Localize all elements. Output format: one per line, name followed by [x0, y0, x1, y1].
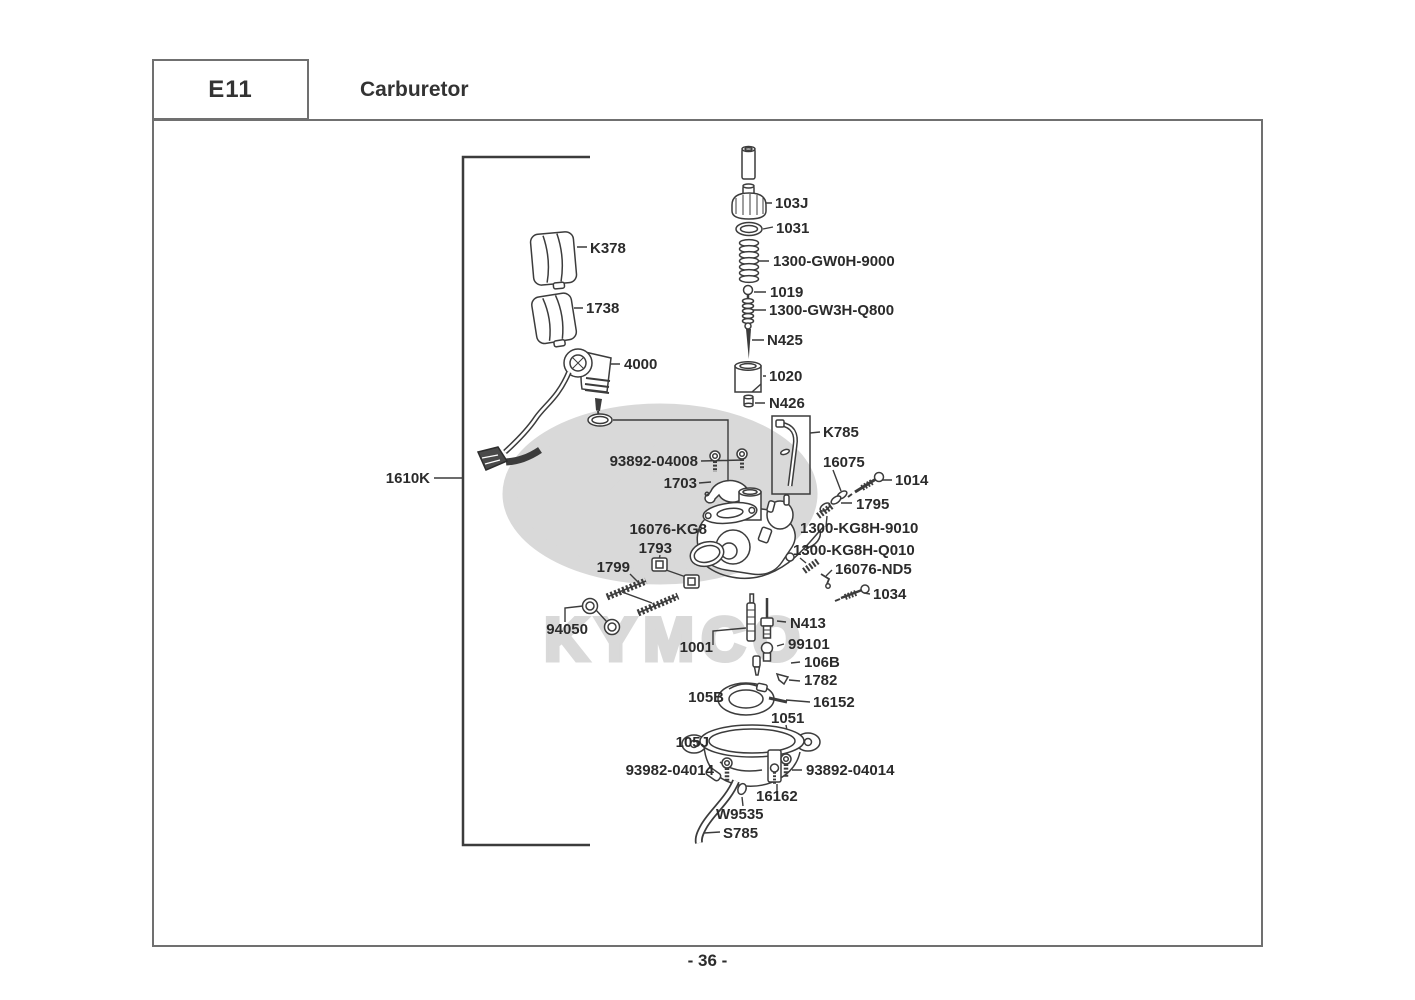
page-number: - 36 - [152, 951, 1263, 971]
section-code-box: E11 [152, 59, 309, 120]
section-code: E11 [208, 76, 252, 104]
diagram-frame [152, 119, 1263, 947]
page-title: Carburetor [360, 78, 469, 102]
catalog-page: E11 Carburetor K KYMCO [0, 0, 1415, 1000]
